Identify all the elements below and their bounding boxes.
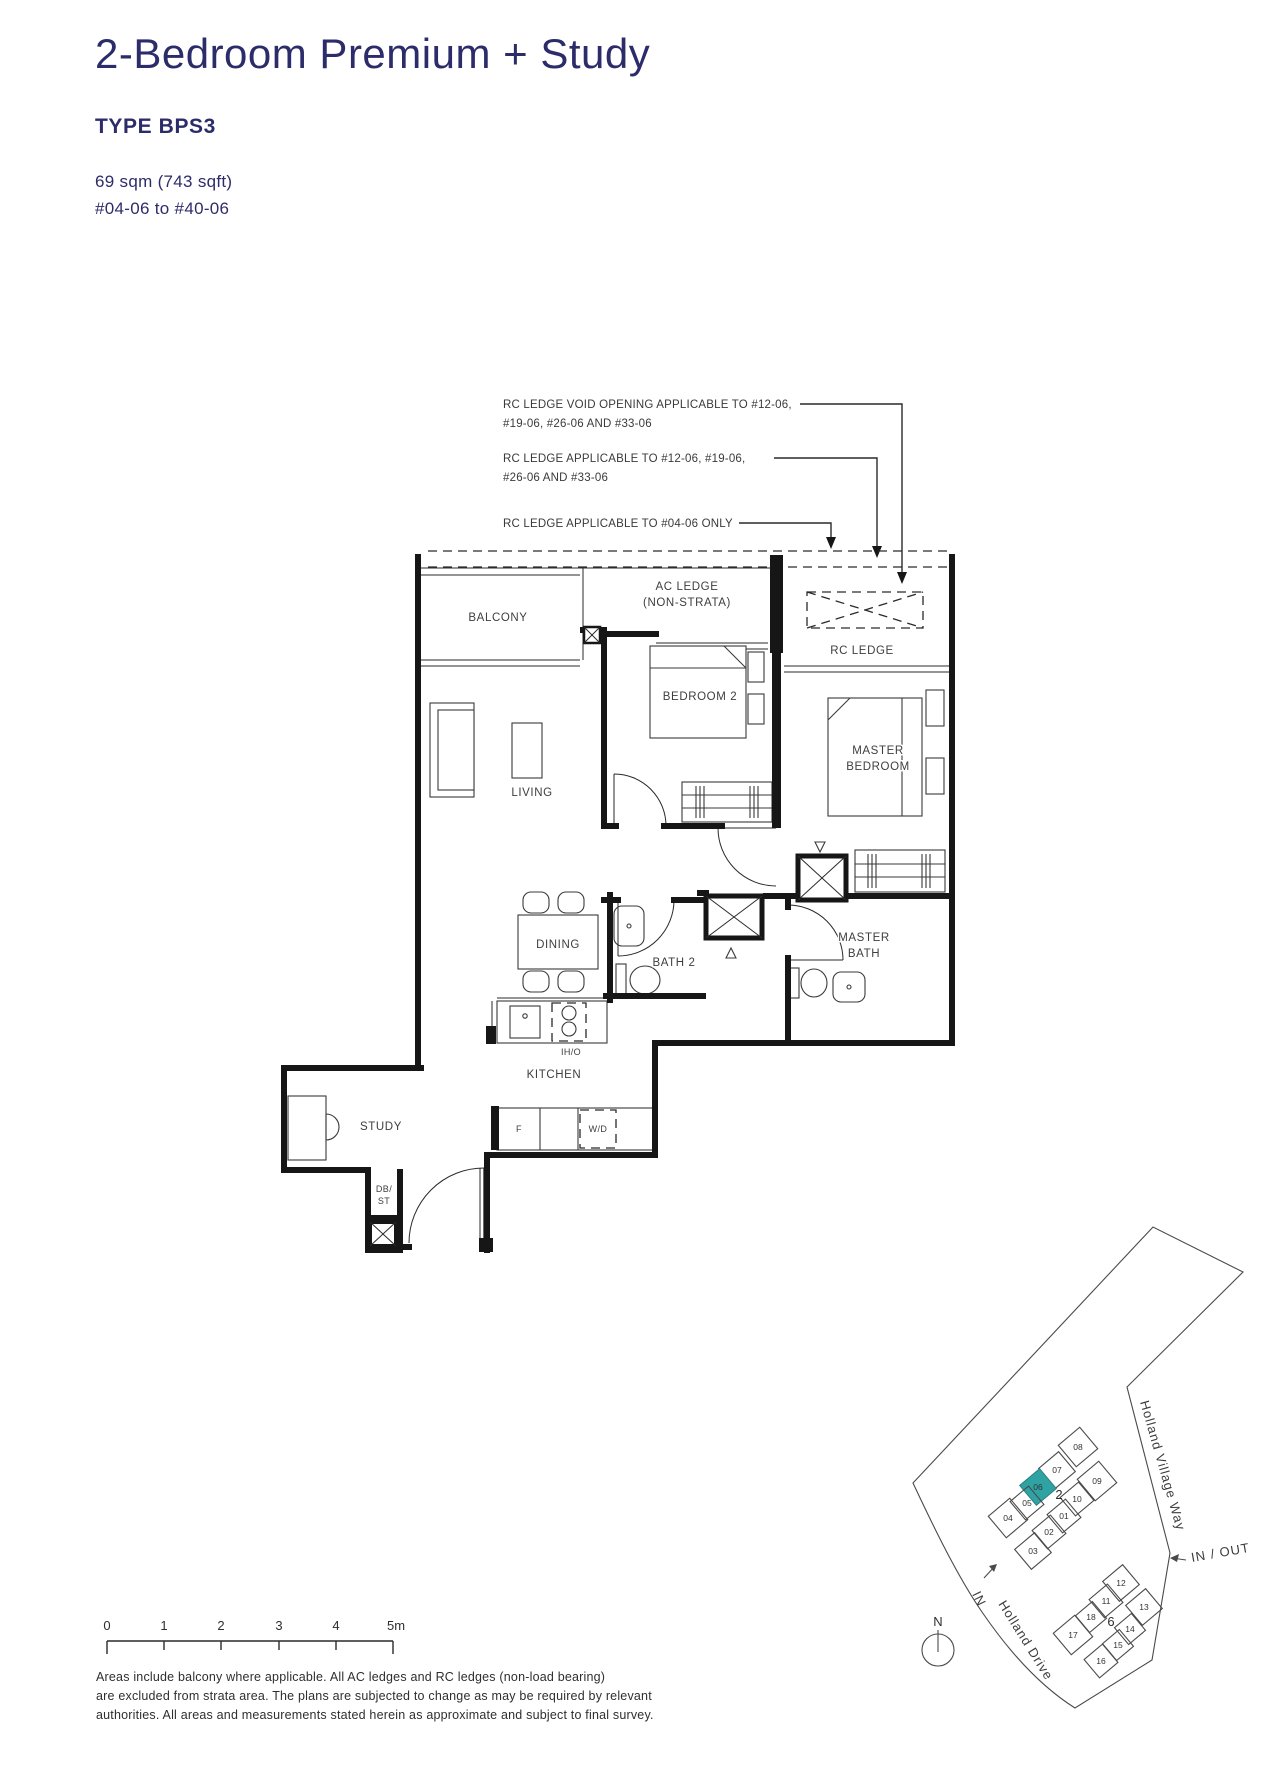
label-north: N <box>933 1614 942 1629</box>
label-dining: DINING <box>536 939 580 951</box>
annotation-rc-ledge-2: #26-06 AND #33-06 <box>503 472 608 484</box>
rc-void-opening-box <box>807 592 923 628</box>
study-desk <box>288 1096 339 1160</box>
stack-01: 01 <box>1059 1511 1069 1521</box>
block-6-label: 6 <box>1107 1614 1114 1629</box>
annotation-rc-void-2: #19-06, #26-06 AND #33-06 <box>503 418 652 430</box>
block-2-label: 2 <box>1055 1487 1062 1502</box>
wardrobe-bedroom2 <box>682 782 772 822</box>
walls <box>284 555 952 1250</box>
scale-bar: 0 1 2 3 4 5m <box>103 1618 405 1654</box>
tv-console <box>512 723 542 778</box>
kitchen-counter <box>486 1001 607 1044</box>
stack-06-highlighted: 06 <box>1033 1482 1043 1492</box>
annotation-rc-ledge-1: RC LEDGE APPLICABLE TO #12-06, #19-06, <box>503 453 745 465</box>
label-master-bath-1: MASTER <box>838 932 890 944</box>
label-ac-ledge-2: (NON-STRATA) <box>643 597 731 609</box>
bath2-fixtures <box>614 906 660 996</box>
rc-ledge-dashed-outline <box>428 551 952 567</box>
scale-5m: 5m <box>387 1618 405 1633</box>
scale-1: 1 <box>160 1618 167 1633</box>
label-fridge: F <box>516 1124 522 1134</box>
stack-07: 07 <box>1052 1465 1062 1475</box>
label-rc-ledge: RC LEDGE <box>830 645 894 657</box>
stack-13: 13 <box>1139 1602 1149 1612</box>
label-in: IN <box>969 1589 989 1609</box>
stack-04: 04 <box>1003 1513 1013 1523</box>
scale-3: 3 <box>275 1618 282 1633</box>
rc-ledge-annotations: RC LEDGE VOID OPENING APPLICABLE TO #12-… <box>503 399 907 584</box>
north-arrow: N <box>922 1614 954 1666</box>
stack-10: 10 <box>1072 1494 1082 1504</box>
stack-18: 18 <box>1086 1612 1096 1622</box>
stack-03: 03 <box>1028 1546 1038 1556</box>
label-holland-village-way: Holland Village Way <box>1137 1399 1189 1533</box>
stack-12: 12 <box>1116 1578 1126 1588</box>
annotation-rc-0406: RC LEDGE APPLICABLE TO #04-06 ONLY <box>503 518 733 530</box>
floorplan-page: 2-Bedroom Premium + Study TYPE BPS3 69 s… <box>0 0 1282 1771</box>
scale-4: 4 <box>332 1618 339 1633</box>
label-kitchen: KITCHEN <box>527 1069 582 1081</box>
label-db: DB/ <box>376 1184 392 1194</box>
stack-11: 11 <box>1102 1596 1111 1606</box>
wardrobe-master <box>855 850 945 892</box>
disclaimer-line1: Areas include balcony where applicable. … <box>96 1668 654 1687</box>
label-bath2: BATH 2 <box>652 957 695 969</box>
label-in-out: IN / OUT <box>1190 1540 1251 1565</box>
label-bedroom2: BEDROOM 2 <box>663 691 737 703</box>
site-block6: 12 11 13 18 6 14 17 15 16 <box>1053 1565 1162 1678</box>
label-ac-ledge-1: AC LEDGE <box>656 581 719 593</box>
master-bath-fixtures <box>790 968 865 1002</box>
stack-08: 08 <box>1073 1442 1083 1452</box>
stack-15: 15 <box>1113 1640 1123 1650</box>
leader-lines <box>739 404 907 584</box>
site-plan: Holland Village Way Holland Drive IN / O… <box>913 1227 1251 1708</box>
label-iho: IH/O <box>561 1047 581 1057</box>
stack-14: 14 <box>1125 1624 1135 1634</box>
label-master-2: BEDROOM <box>846 761 910 773</box>
floor-plan-canvas: RC LEDGE VOID OPENING APPLICABLE TO #12-… <box>0 0 1282 1771</box>
disclaimer-line2: are excluded from strata area. The plans… <box>96 1687 654 1706</box>
label-master-bath-2: BATH <box>848 948 880 960</box>
scale-2: 2 <box>217 1618 224 1633</box>
stack-16: 16 <box>1096 1656 1106 1666</box>
label-study: STUDY <box>360 1121 402 1133</box>
disclaimer-line3: authorities. All areas and measurements … <box>96 1706 654 1725</box>
floor-plan: BALCONY AC LEDGE (NON-STRATA) RC LEDGE B… <box>284 551 952 1252</box>
stack-02: 02 <box>1044 1527 1054 1537</box>
label-living: LIVING <box>511 787 552 799</box>
stack-17: 17 <box>1068 1630 1078 1640</box>
label-wd: W/D <box>589 1124 608 1134</box>
disclaimer: Areas include balcony where applicable. … <box>96 1668 654 1725</box>
doors <box>409 774 843 1252</box>
stack-09: 09 <box>1092 1476 1102 1486</box>
label-holland-drive: Holland Drive <box>995 1598 1056 1683</box>
label-balcony: BALCONY <box>468 612 527 624</box>
scale-0: 0 <box>103 1618 110 1633</box>
label-master-1: MASTER <box>852 745 904 757</box>
site-block2: 08 07 09 06 05 10 2 01 04 02 03 <box>988 1427 1116 1569</box>
label-st: ST <box>378 1196 390 1206</box>
stack-05: 05 <box>1022 1498 1032 1508</box>
annotation-rc-void-1: RC LEDGE VOID OPENING APPLICABLE TO #12-… <box>503 399 792 411</box>
